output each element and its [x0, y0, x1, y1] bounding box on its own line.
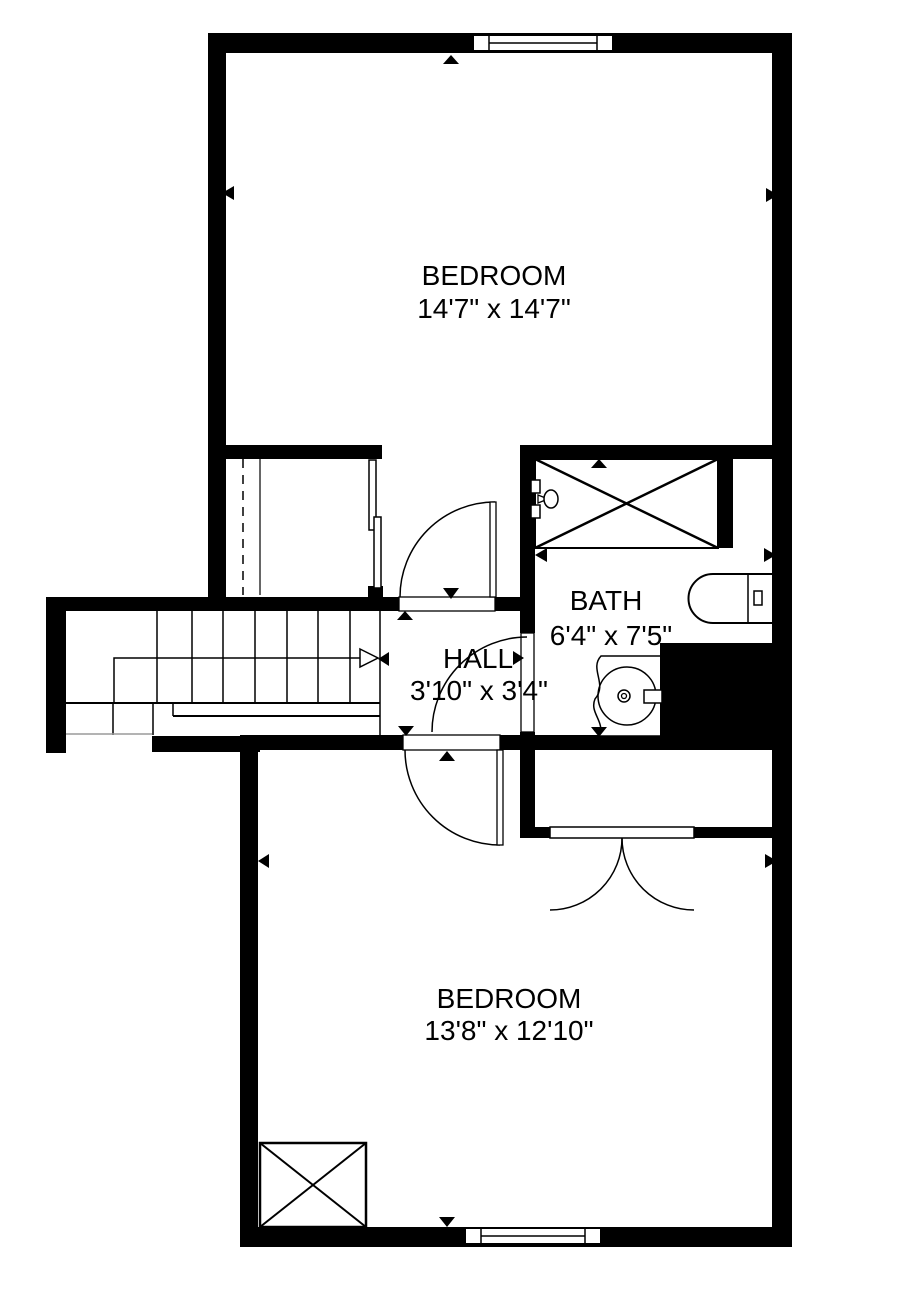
marker-left — [535, 548, 547, 562]
marker-up — [397, 611, 413, 620]
toilet-icon — [688, 574, 772, 623]
staircase-icon — [66, 611, 380, 735]
closet2-double-door-icon — [550, 827, 694, 910]
bedroom1-label: BEDROOM — [334, 261, 654, 292]
bedroom2-dimensions: 13'8" x 12'10" — [349, 1016, 669, 1047]
bedroom1-dimensions: 14'7" x 14'7" — [334, 294, 654, 325]
window-bottom-icon — [465, 1228, 601, 1244]
hall-dimensions: 3'10" x 3'4" — [399, 676, 559, 707]
marker-down — [439, 1217, 455, 1227]
marker-right — [764, 548, 776, 562]
floor-plan: BEDROOM 14'7" x 14'7" BATH 6'4" x 7'5" H… — [0, 0, 920, 1290]
sliding-door-panel — [374, 517, 381, 588]
marker-right — [765, 854, 777, 868]
marker-up — [443, 55, 459, 64]
stair-direction-arrow — [114, 649, 378, 703]
skylight-x-box-icon — [260, 1143, 366, 1227]
hall-label: HALL — [398, 644, 558, 675]
window-top-icon — [473, 35, 613, 51]
marker-right — [766, 188, 778, 202]
sink-icon — [594, 656, 662, 736]
marker-left — [222, 186, 234, 200]
bath-label: BATH — [516, 586, 696, 617]
marker-left — [258, 854, 269, 868]
bedroom2-door-icon — [403, 735, 503, 845]
bedroom1-door-icon — [399, 502, 496, 611]
closet1-icon — [243, 459, 381, 595]
shower-icon — [531, 459, 718, 548]
marker-up — [439, 751, 455, 761]
bedroom2-label: BEDROOM — [349, 984, 669, 1015]
